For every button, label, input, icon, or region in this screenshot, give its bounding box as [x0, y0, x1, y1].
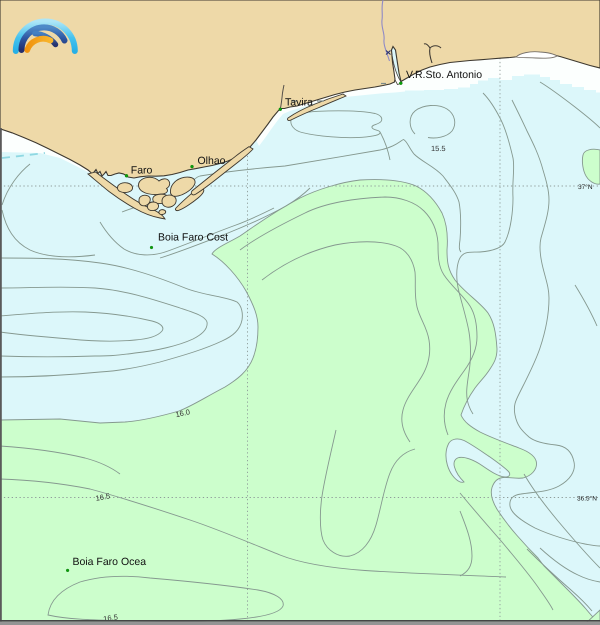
- svg-text:37°N: 37°N: [578, 184, 593, 191]
- svg-text:Faro: Faro: [131, 165, 153, 177]
- svg-text:15.5: 15.5: [431, 144, 446, 153]
- svg-text:Boia Faro Cost: Boia Faro Cost: [158, 232, 228, 244]
- svg-text:Boia Faro Ocea: Boia Faro Ocea: [73, 556, 147, 568]
- svg-text:Tavira: Tavira: [285, 97, 313, 109]
- svg-text:Olhao: Olhao: [198, 155, 226, 167]
- svg-text:36.5°N: 36.5°N: [577, 496, 597, 503]
- svg-text:V.R.Sto. Antonio: V.R.Sto. Antonio: [406, 69, 482, 81]
